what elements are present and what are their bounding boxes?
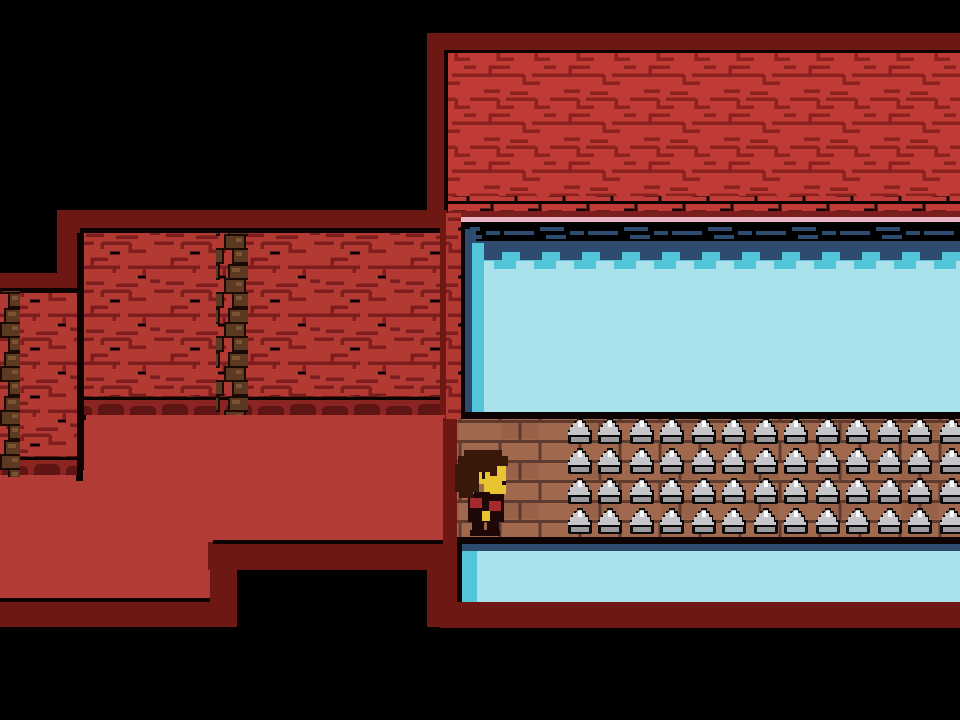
water-lower-surface — [462, 551, 960, 602]
water-wave-dashes — [470, 227, 960, 242]
water-left-teal-edge — [472, 243, 484, 417]
water-left-outline — [461, 222, 465, 417]
floor-border-step — [210, 570, 237, 627]
water-upper — [455, 222, 960, 417]
back-wall-foot-shadow — [84, 396, 440, 415]
wall-base-brick-row — [448, 196, 960, 212]
floor-left — [0, 470, 84, 601]
spike-bridge — [455, 412, 960, 544]
back-wall-bricks — [84, 233, 440, 398]
water-lower-bottom-border — [440, 602, 960, 628]
vine-column-center — [216, 233, 248, 415]
game-window — [0, 0, 960, 720]
floor-border-outline — [213, 540, 443, 544]
wall-base-highlight-line — [454, 217, 960, 222]
water-teal-scallops — [482, 261, 960, 269]
water-lower-navy-line — [460, 544, 960, 551]
front-column-right-outline — [76, 288, 83, 481]
floor-border-mid — [208, 542, 447, 570]
wall-bricks — [448, 53, 960, 196]
floor-border-bottom — [0, 601, 212, 627]
player-foot — [485, 530, 500, 536]
divider-border — [443, 418, 457, 548]
player-foot — [470, 530, 485, 536]
spike-field — [564, 416, 960, 536]
water-lower-left-teal-edge — [462, 551, 477, 602]
floor-main — [84, 415, 445, 542]
divider-border-lower — [440, 544, 457, 628]
player-ear-line — [482, 472, 485, 479]
bridge-bottom-outline — [455, 537, 960, 544]
player-shirt-stripe — [470, 498, 482, 508]
water-lower — [440, 544, 960, 628]
player-hair — [455, 464, 490, 472]
water-lower-left-outline — [457, 544, 462, 602]
player-hair — [459, 490, 473, 498]
player-hair-fringe — [490, 464, 497, 476]
floor-border-outline — [0, 598, 210, 602]
water-surface — [482, 261, 960, 417]
floor-lower-step — [84, 542, 210, 601]
ruins-left — [0, 210, 461, 628]
divider-brick-column — [446, 213, 461, 419]
game-viewport[interactable] — [0, 0, 960, 720]
player-shirt-stripe — [489, 501, 501, 511]
player-mouth — [502, 481, 506, 485]
player-pendant — [482, 511, 490, 521]
vine-column-left — [0, 291, 20, 477]
wall-base-trim — [448, 211, 960, 217]
water-navy-scallops — [468, 252, 960, 260]
